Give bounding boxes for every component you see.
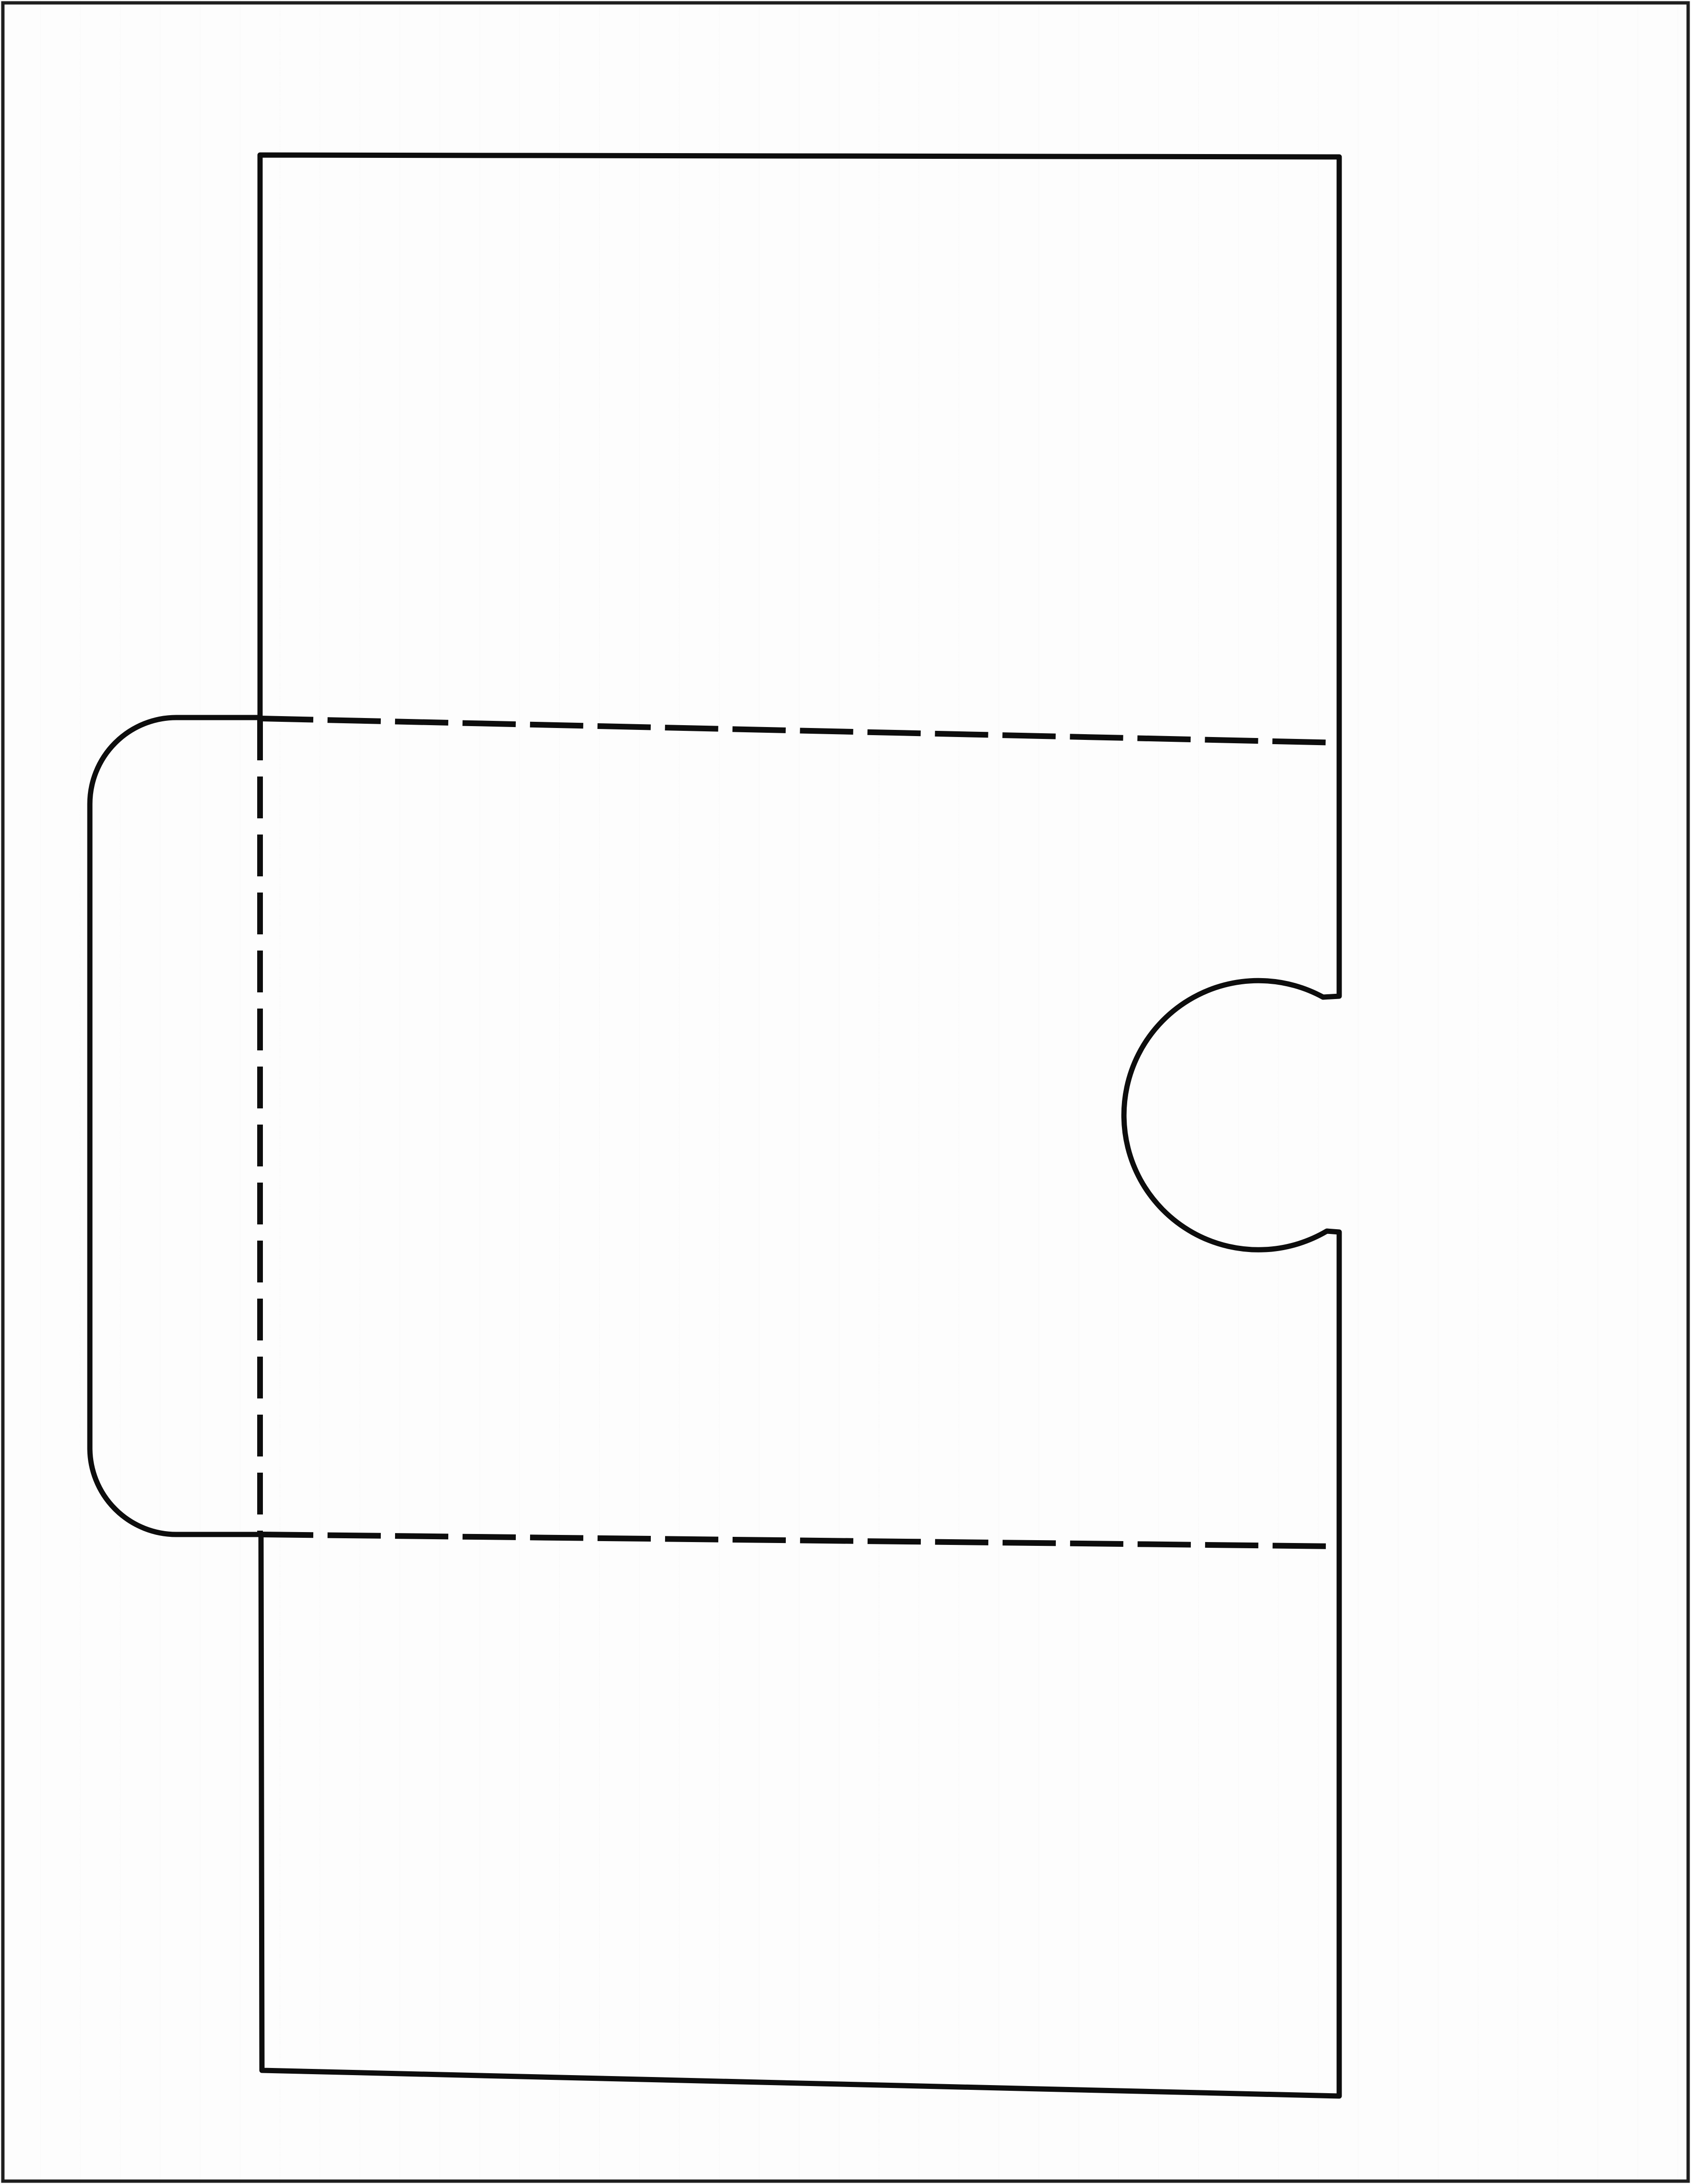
body-cut-outline	[260, 155, 1339, 2096]
fold-line-bottom	[260, 1534, 1339, 1546]
scanned-template-page	[0, 0, 1691, 2184]
flap-cut-outline	[90, 718, 260, 1534]
die-cut-template-drawing	[0, 0, 1691, 2184]
page-border	[3, 3, 1688, 2181]
fold-line-top	[260, 718, 1339, 743]
